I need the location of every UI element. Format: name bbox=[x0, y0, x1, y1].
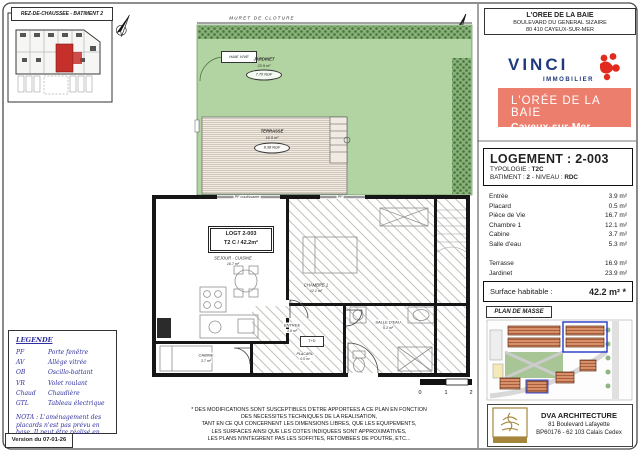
overview-title: REZ-DE-CHAUSSEE - BATIMENT 2 bbox=[11, 7, 113, 21]
logement-box: LOGEMENT : 2-003 TYPOLOGIE : T2C BATIMEN… bbox=[483, 148, 633, 186]
north-arrow-icon-small bbox=[115, 13, 134, 37]
room-label-placard: PLACARD bbox=[296, 352, 315, 356]
scale-bar: 0 1 2 bbox=[418, 379, 472, 396]
architect-box: DVA ARCHITECTURE 81 Boulevard Lafayette … bbox=[487, 404, 633, 447]
room-area-salle-eau: 5.3 m² bbox=[382, 326, 394, 330]
row-label: Jardinet bbox=[489, 270, 512, 280]
architect-text: DVA ARCHITECTURE 81 Boulevard Lafayette … bbox=[528, 411, 630, 437]
legend-label: Chaudière bbox=[48, 389, 80, 399]
terrasse-ngf: 8.38 NGF bbox=[254, 143, 290, 154]
table-row: Placard0.5 m² bbox=[489, 203, 627, 213]
row-value: 12.1 m² bbox=[605, 222, 627, 232]
room-area-entree: 3.9 m² bbox=[286, 329, 298, 333]
row-value: 23.9 m² bbox=[605, 270, 627, 280]
outdoor-areas-table: Terrasse16.9 m² Jardinet23.9 m² bbox=[489, 260, 627, 279]
table-row: Jardinet23.9 m² bbox=[489, 270, 627, 280]
disclaimer-line: TANT EN CE QUI CONCERNENT LES DIMENSIONS… bbox=[140, 421, 478, 428]
plan-sheet: 0 1 2 bbox=[0, 0, 640, 453]
legend-abbr: OB bbox=[16, 368, 48, 378]
legend-item: PFPorte fenêtre bbox=[9, 348, 116, 358]
terrasse-steps bbox=[330, 117, 350, 163]
room-label-entree: ENTREE bbox=[283, 323, 301, 328]
table-row: Terrasse16.9 m² bbox=[489, 260, 627, 270]
legend-label: Tableau électrique bbox=[48, 399, 105, 409]
scale-0: 0 bbox=[418, 390, 421, 396]
room-area-cabine: 3.7 m² bbox=[200, 359, 212, 363]
legend-title: LEGENDE bbox=[16, 336, 116, 344]
pf-coulissante-label: PF coulissante bbox=[234, 195, 261, 199]
table-row: Salle d'eau5.3 m² bbox=[489, 241, 627, 251]
logement-typologie: TYPOLOGIE : T2C bbox=[490, 166, 626, 174]
legend-label: Allège vitrée bbox=[48, 358, 87, 368]
row-label: Terrasse bbox=[489, 260, 514, 270]
typologie-label: TYPOLOGIE : bbox=[490, 166, 532, 173]
logt-box: LOGT 2-003 T2 C / 42.2m² bbox=[210, 228, 272, 251]
row-label: Pièce de Vie bbox=[489, 212, 525, 222]
scale-2: 2 bbox=[469, 390, 472, 396]
room-areas-table: Entrée3.9 m² Placard0.5 m² Pièce de Vie1… bbox=[489, 193, 627, 251]
row-value: 0.5 m² bbox=[609, 203, 627, 213]
table-row: Cabine3.7 m² bbox=[489, 231, 627, 241]
room-area-placard: 0.5 m² bbox=[299, 357, 311, 361]
legend-label: Volet roulant bbox=[48, 379, 87, 389]
row-value: 3.9 m² bbox=[609, 193, 627, 203]
room-area-sejour: 16.7 m² bbox=[227, 262, 239, 266]
version-box: Version du 07-01-26 bbox=[5, 433, 73, 448]
legend-item: AVAllège vitrée bbox=[9, 358, 116, 368]
room-label-sejour: SEJOUR - CUISINE bbox=[214, 256, 252, 261]
room-label-chambre: CHAMBRE 1 bbox=[304, 283, 328, 288]
row-label: Chambre 1 bbox=[489, 222, 521, 232]
terrasse-area: 16.9 m² bbox=[266, 136, 279, 140]
legend-box: LEGENDE PFPorte fenêtre AVAllège vitrée … bbox=[8, 330, 117, 434]
room-label-cabine: CABINE bbox=[198, 353, 215, 358]
legend-label: Oscillo-battant bbox=[48, 368, 93, 378]
row-label: Salle d'eau bbox=[489, 241, 521, 251]
logt-type: T2 C / 42.2m² bbox=[211, 239, 271, 248]
architect-name: DVA ARCHITECTURE bbox=[528, 411, 630, 421]
table-row: Entrée3.9 m² bbox=[489, 193, 627, 203]
jardinet-label: JARDINET bbox=[254, 57, 275, 62]
legend-abbr: AV bbox=[16, 358, 48, 368]
row-value: 16.9 m² bbox=[605, 260, 627, 270]
surface-habitable-box: Surface habitable : 42.2 m² * bbox=[483, 281, 633, 302]
niveau-value: RDC bbox=[564, 174, 578, 181]
vinci-logo-text: VINCI bbox=[508, 55, 568, 75]
legend-item: ChaudChaudière bbox=[9, 389, 116, 399]
highlighted-unit bbox=[56, 44, 73, 72]
architect-address1: 81 Boulevard Lafayette bbox=[528, 421, 630, 429]
logt-number: LOGT 2-003 bbox=[211, 230, 271, 239]
architect-address2: BP60176 - 62 103 Calais Cedex bbox=[528, 429, 630, 437]
disclaimer-line: * DES MODIFICATIONS SONT SUSCEPTIBLES D'… bbox=[140, 407, 478, 414]
row-value: 5.3 m² bbox=[609, 241, 627, 251]
tableau-box: T+D bbox=[300, 336, 324, 347]
row-value: 16.7 m² bbox=[605, 212, 627, 222]
batiment-label: BATIMENT : bbox=[490, 174, 527, 181]
logement-title: LOGEMENT : 2-003 bbox=[490, 152, 626, 166]
legend-abbr: Chaud bbox=[16, 389, 48, 399]
disclaimer-line: LES SURFACES AINSI QUE LES COTES INDIQUE… bbox=[140, 429, 478, 436]
scale-1: 1 bbox=[444, 390, 447, 396]
legend-abbr: GTL bbox=[16, 399, 48, 409]
legend-label: Porte fenêtre bbox=[48, 348, 88, 358]
overview-mini-plan bbox=[8, 13, 112, 102]
room-area-chambre: 12.1 m² bbox=[310, 289, 322, 293]
project-city: 80 410 CAYEUX-SUR-MER bbox=[485, 27, 635, 34]
project-address-box: L'OREE DE LA BAIE BOULEVARD DU GENERAL S… bbox=[484, 8, 636, 35]
logement-batiment: BATIMENT : 2 - NIVEAU : RDC bbox=[490, 174, 626, 182]
disclaimer-line: LES PLANS N'INTEGRENT PAS LES SOFFITES, … bbox=[140, 436, 478, 443]
haie-vive-label: HAIE VIVE bbox=[221, 51, 257, 63]
banner-title: L'ORÉE DE LA BAIE bbox=[511, 95, 631, 119]
surface-label: Surface habitable : bbox=[490, 287, 553, 296]
pf-label: PF bbox=[337, 195, 344, 199]
legend-abbr: VR bbox=[16, 379, 48, 389]
legend-abbr: PF bbox=[16, 348, 48, 358]
row-label: Entrée bbox=[489, 193, 508, 203]
legend-item: VRVolet roulant bbox=[9, 379, 116, 389]
legend-item: GTLTableau électrique bbox=[9, 399, 116, 409]
banner-subtitle: Cayeux-sur-Mer bbox=[511, 121, 631, 133]
vinci-logo-subtitle: IMMOBILIER bbox=[543, 77, 594, 83]
row-label: Placard bbox=[489, 203, 511, 213]
disclaimer-line: DES NECESSITES TECHNIQUES DE LA REALISAT… bbox=[140, 414, 478, 421]
hedge-right bbox=[452, 58, 471, 194]
typologie-value: T2C bbox=[532, 166, 544, 173]
boiler-icon bbox=[157, 318, 171, 338]
plan-masse-label: PLAN DE MASSE bbox=[486, 306, 552, 318]
table-row: Pièce de Vie16.7 m² bbox=[489, 212, 627, 222]
terrasse-label: TERRASSE bbox=[261, 129, 284, 134]
row-label: Cabine bbox=[489, 231, 510, 241]
jardinet-area: 23.9 m² bbox=[258, 64, 271, 68]
surface-value: 42.2 m² * bbox=[589, 287, 626, 297]
room-label-salle-eau: SALLE D'EAU bbox=[374, 320, 401, 325]
disclaimer: * DES MODIFICATIONS SONT SUSCEPTIBLES D'… bbox=[140, 407, 478, 443]
jardinet-ngf: 7.70 NGF bbox=[246, 70, 282, 81]
project-banner: L'ORÉE DE LA BAIE Cayeux-sur-Mer bbox=[498, 88, 631, 127]
legend-item: OBOscillo-battant bbox=[9, 368, 116, 378]
vinci-logo-mark bbox=[600, 53, 620, 80]
row-value: 3.7 m² bbox=[609, 231, 627, 241]
site-plan bbox=[487, 320, 632, 400]
project-name: L'OREE DE LA BAIE bbox=[485, 11, 635, 20]
table-row: Chambre 112.1 m² bbox=[489, 222, 627, 232]
hedge-top bbox=[198, 26, 471, 39]
muret-label: MURET DE CLOTURE bbox=[229, 16, 294, 21]
niveau-label: - NIVEAU : bbox=[530, 174, 564, 181]
